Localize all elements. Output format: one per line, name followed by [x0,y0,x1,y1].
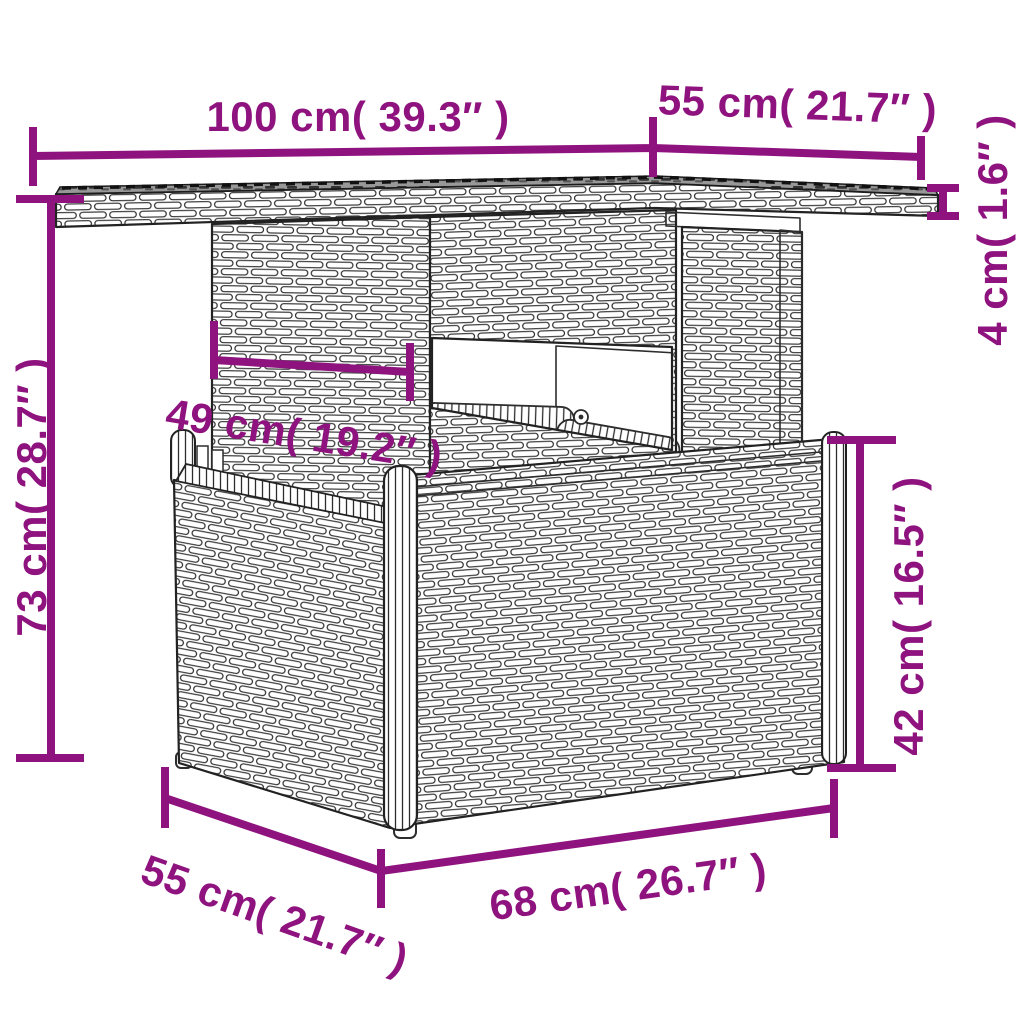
lower-base-box [171,430,846,838]
dim-top-thickness: 4 cm( 1.6″ ) [927,114,1016,346]
dim-top-width: 100 cm( 39.3″ ) [33,93,653,186]
dim-top-depth-line [653,136,921,180]
table-dimension-diagram: 100 cm( 39.3″ ) 55 cm( 21.7″ ) 4 cm( 1.6… [0,0,1024,1024]
upper-box-right-column [682,227,802,459]
dim-top-depth-label: 55 cm( 21.7″ ) [657,76,938,133]
dim-base-height-label: 42 cm( 16.5″ ) [885,476,932,755]
table-drawing [56,176,938,838]
dim-total-height-label: 73 cm( 28.7″ ) [8,357,55,636]
dim-top-thickness-label: 4 cm( 1.6″ ) [969,114,1016,346]
back-right-corner-post [822,432,846,764]
dim-base-width-label: 68 cm( 26.7″ ) [486,844,769,929]
dim-total-height: 73 cm( 28.7″ ) [8,199,84,758]
dim-top-depth: 55 cm( 21.7″ ) [653,76,938,180]
dim-top-width-label: 100 cm( 39.3″ ) [206,93,509,140]
base-left-face [174,480,390,828]
front-corner-post [384,466,417,830]
base-right-face [400,438,844,826]
diagram-canvas: 100 cm( 39.3″ ) 55 cm( 21.7″ ) 4 cm( 1.6… [0,0,1024,1024]
adjuster-knob-center [579,415,584,420]
